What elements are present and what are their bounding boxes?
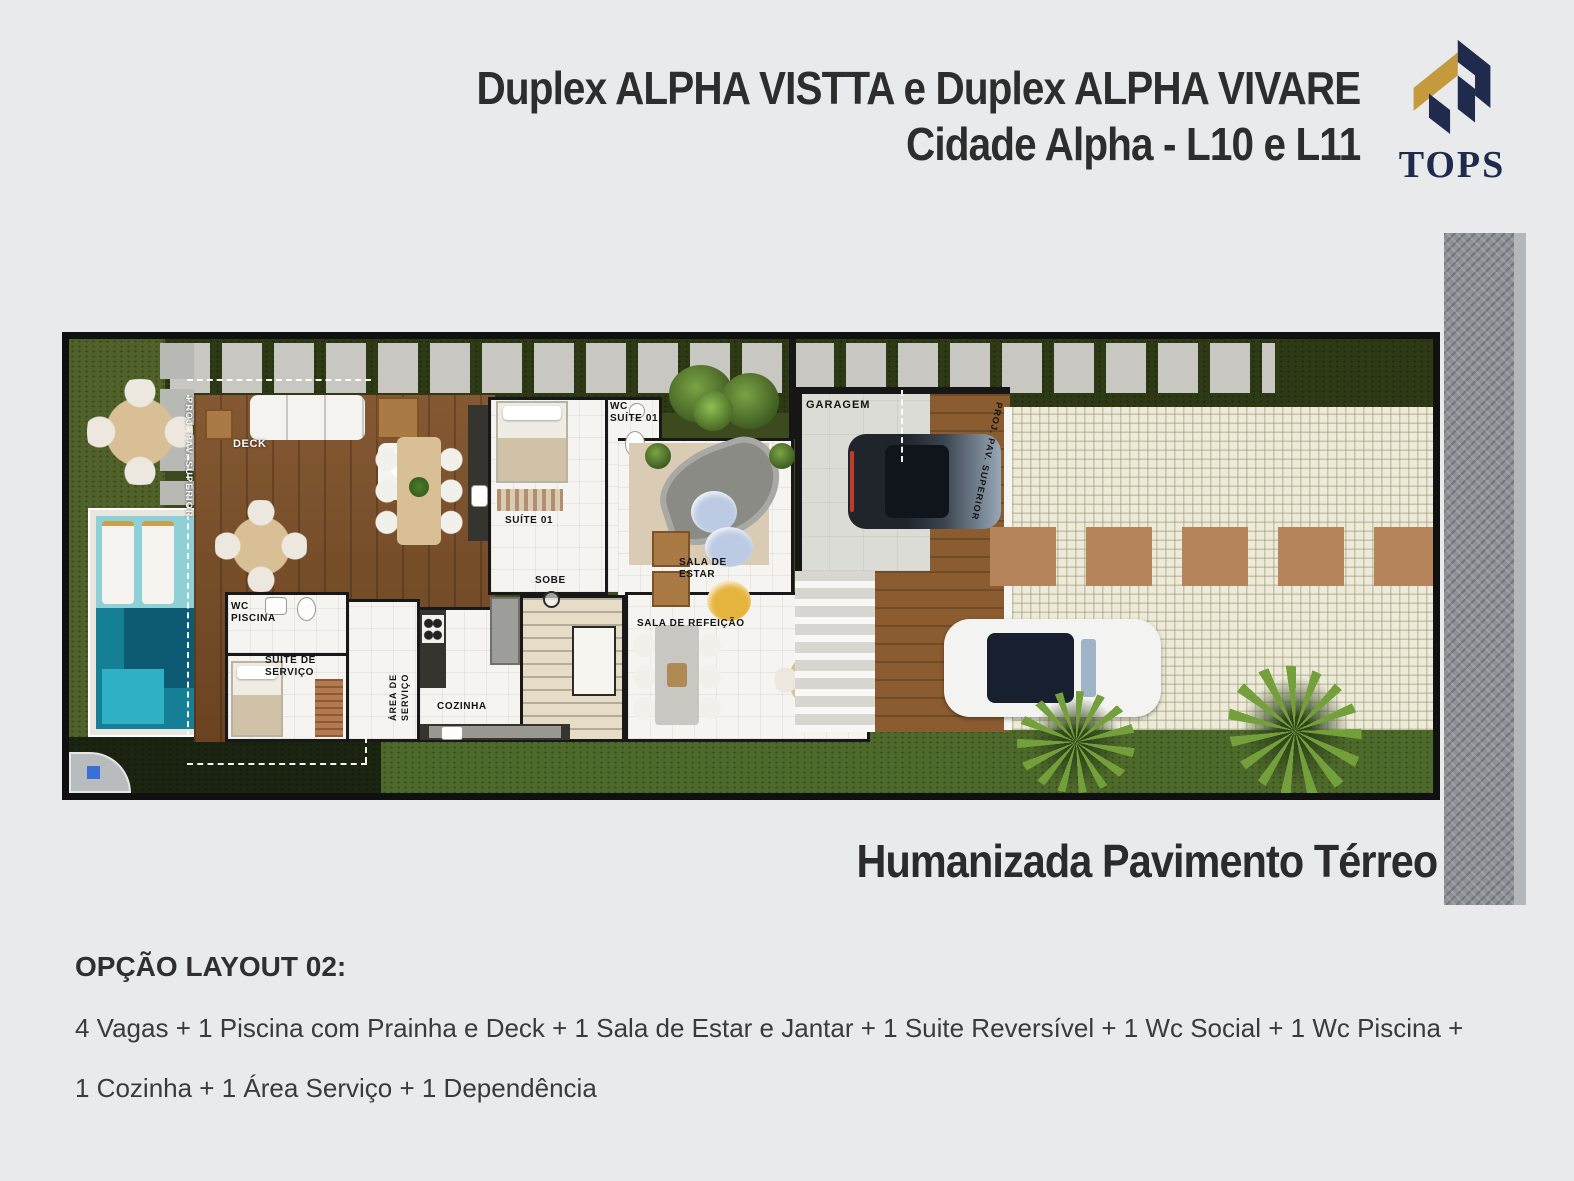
page-title: Duplex ALPHA VISTTA e Duplex ALPHA VIVAR… xyxy=(476,60,1360,172)
deck-table-set xyxy=(215,500,307,592)
brand-name: TOPS xyxy=(1392,143,1512,187)
label-sobe: SOBE xyxy=(535,575,566,587)
sobe-marker xyxy=(543,591,560,608)
tops-logo-icon xyxy=(1404,34,1500,136)
deck-side-table xyxy=(377,397,419,439)
projection-line xyxy=(187,379,371,381)
garden-table-set xyxy=(87,379,193,485)
label-area-servico: ÁREA DE SERVIÇO xyxy=(387,635,411,721)
fridge-cabinet xyxy=(490,597,520,665)
label-wc-suite-01: WC SUÍTE 01 xyxy=(610,401,660,425)
footer-line-2: 1 Cozinha + 1 Área Serviço + 1 Dependênc… xyxy=(75,1073,597,1104)
armchair-yellow xyxy=(707,581,751,621)
title-line-2: Cidade Alpha - L10 e L11 xyxy=(476,116,1360,172)
label-suite-01: SUÍTE 01 xyxy=(505,515,553,527)
plant-pot xyxy=(769,443,795,469)
deck-sofa xyxy=(250,395,365,440)
suite-bed xyxy=(496,401,568,483)
stove xyxy=(422,615,444,643)
footer-heading: OPÇÃO LAYOUT 02: xyxy=(75,951,346,983)
label-garagem: GARAGEM xyxy=(806,399,870,411)
projection-line xyxy=(901,390,903,462)
pool-step-area xyxy=(102,669,164,724)
utility-marker xyxy=(87,766,100,779)
label-suite-servico: SUÍTE DE SERVIÇO xyxy=(265,655,327,679)
deck-side-table xyxy=(205,409,233,440)
pool-lounger xyxy=(102,521,134,604)
garden-plant xyxy=(693,391,733,431)
palm-tree xyxy=(1017,691,1135,793)
pergola-walkway xyxy=(795,571,875,732)
projection-line xyxy=(187,763,367,765)
projection-line xyxy=(365,737,367,763)
floor-plan: PROJ. PAV. SUPERIOR DECK GARAGEM PROJ. P… xyxy=(62,332,1440,800)
service-shelf xyxy=(315,679,343,737)
sidewalk xyxy=(1444,233,1526,905)
bar-sink xyxy=(471,485,488,507)
label-wc-piscina: WC PISCINA xyxy=(231,601,283,625)
stairs-landing xyxy=(572,626,616,696)
table-plant xyxy=(409,477,429,497)
footer-line-1: 4 Vagas + 1 Piscina com Prainha e Deck +… xyxy=(75,1013,1463,1044)
plan-caption: Humanizada Pavimento Térreo xyxy=(856,834,1437,888)
kitchen-sink xyxy=(441,726,463,740)
brand-logo: TOPS xyxy=(1392,34,1512,187)
suite-rug xyxy=(497,489,563,511)
label-deck: DECK xyxy=(233,438,267,450)
stairs-sobe xyxy=(520,595,625,742)
bar-counter xyxy=(468,405,490,541)
label-sala-refeicao: SALA DE REFEIÇÃO xyxy=(637,618,745,630)
pool-lounger xyxy=(142,521,174,604)
plant-pot xyxy=(645,443,671,469)
label-sala-estar: SALA DE ESTAR xyxy=(679,557,733,581)
sidewalk-curb xyxy=(1514,233,1526,905)
meal-table-set xyxy=(629,623,725,727)
label-cozinha: COZINHA xyxy=(437,701,487,713)
label-proj-pav-superior-left: PROJ. PAV. SUPERIOR xyxy=(183,397,195,518)
title-line-1: Duplex ALPHA VISTTA e Duplex ALPHA VIVAR… xyxy=(476,60,1360,116)
driveway-wood-planks xyxy=(990,527,1433,586)
table-runner xyxy=(667,663,687,687)
garage-wall-left xyxy=(795,387,802,571)
page: Duplex ALPHA VISTTA e Duplex ALPHA VIVAR… xyxy=(0,0,1574,1181)
dining-table-set xyxy=(369,435,469,547)
piscina-wc-toilet xyxy=(297,597,316,621)
